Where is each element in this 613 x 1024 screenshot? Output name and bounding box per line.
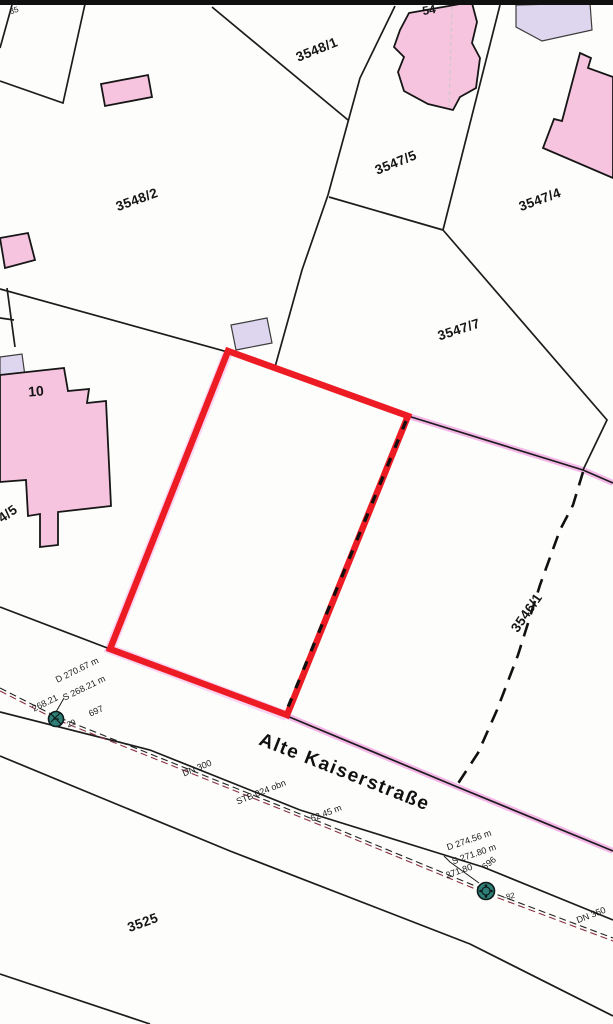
manhole-left-point-label: 29 — [65, 717, 77, 729]
building-54 — [394, 3, 480, 110]
parcel-boundary — [275, 6, 395, 367]
manhole-right-elevation-label: 271.80 — [444, 862, 473, 880]
house-number-54: 54 — [421, 2, 437, 18]
pipe-diameter-right-label: DN 350 — [575, 905, 607, 925]
building-10 — [0, 368, 111, 547]
parcel-boundary — [0, 974, 150, 1024]
highlighted-parcel — [110, 351, 408, 715]
parcel-label-3547-5: 3547/5 — [373, 147, 419, 177]
building-outbuilding-3548-2 — [101, 75, 152, 106]
manhole-right-icon — [478, 883, 495, 900]
manhole-left-icon — [49, 712, 64, 727]
sewer-annotations-left: D 270.67 m S 268.21 m 268.21 697 29 — [30, 655, 106, 729]
cadastral-map-canvas: 3548/2 3548/1 3547/5 3547/4 3547/7 3546/… — [0, 0, 613, 1024]
manhole-right-id-label: 696 — [480, 854, 498, 871]
map-frame-top-edge — [0, 0, 613, 5]
manhole-left-id-label: 697 — [87, 703, 105, 718]
building-left-edge — [0, 233, 35, 268]
parcel-label-3525: 3525 — [125, 910, 160, 935]
parcel-label-partial-left: 4/5 — [0, 502, 20, 526]
parcel-boundary — [329, 197, 443, 230]
parcel-label-partial-top: 35 — [9, 5, 21, 16]
parcel-label-3548-2: 3548/2 — [114, 185, 160, 214]
house-number-10: 10 — [27, 382, 44, 399]
parcel-boundary — [0, 4, 85, 103]
building-shed-3547-7 — [231, 318, 272, 350]
street-south-edge — [0, 756, 613, 1016]
parcel-label-3548-1: 3548/1 — [294, 34, 340, 64]
parcel-label-3547-4: 3547/4 — [517, 185, 563, 214]
parcel-boundary — [212, 7, 348, 120]
parcel-label-3547-7: 3547/7 — [436, 316, 482, 344]
red-parcel-outline — [110, 351, 408, 715]
parcel-boundary-lines — [0, 4, 613, 1024]
building-right-edge — [543, 53, 613, 178]
sewer-annotations-right: D 274.56 m S 271.80 m 696 271.80 -82 DN … — [444, 828, 607, 925]
cadastral-map-page: 3548/2 3548/1 3547/5 3547/4 3547/7 3546/… — [0, 0, 613, 1024]
building-lavender-top — [516, 3, 592, 41]
pipe-length-label: 62.45 m — [309, 803, 343, 824]
parcel-boundary — [7, 288, 15, 347]
